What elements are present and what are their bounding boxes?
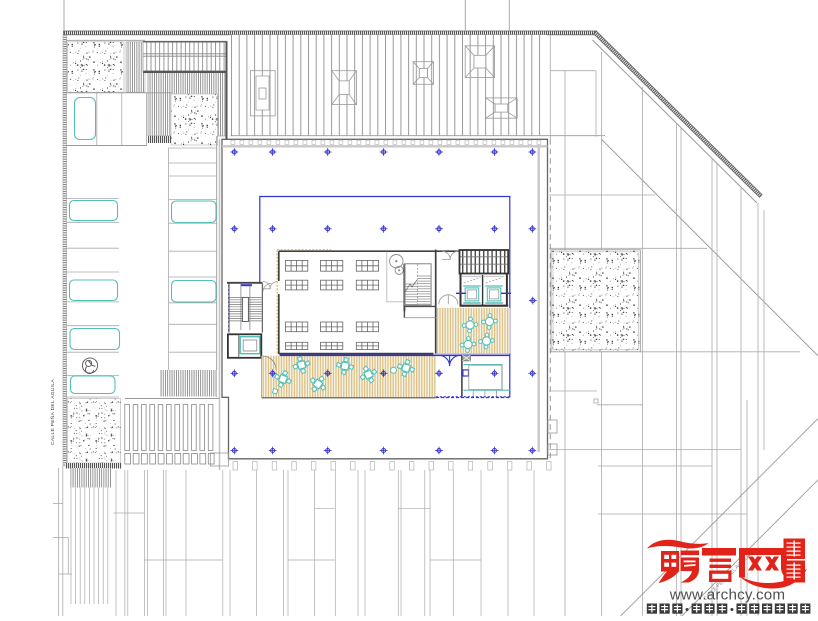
svg-text:www.archcy.com: www.archcy.com	[669, 587, 786, 604]
svg-text:CALLE PEÑA DEL AGUILA: CALLE PEÑA DEL AGUILA	[49, 379, 56, 445]
